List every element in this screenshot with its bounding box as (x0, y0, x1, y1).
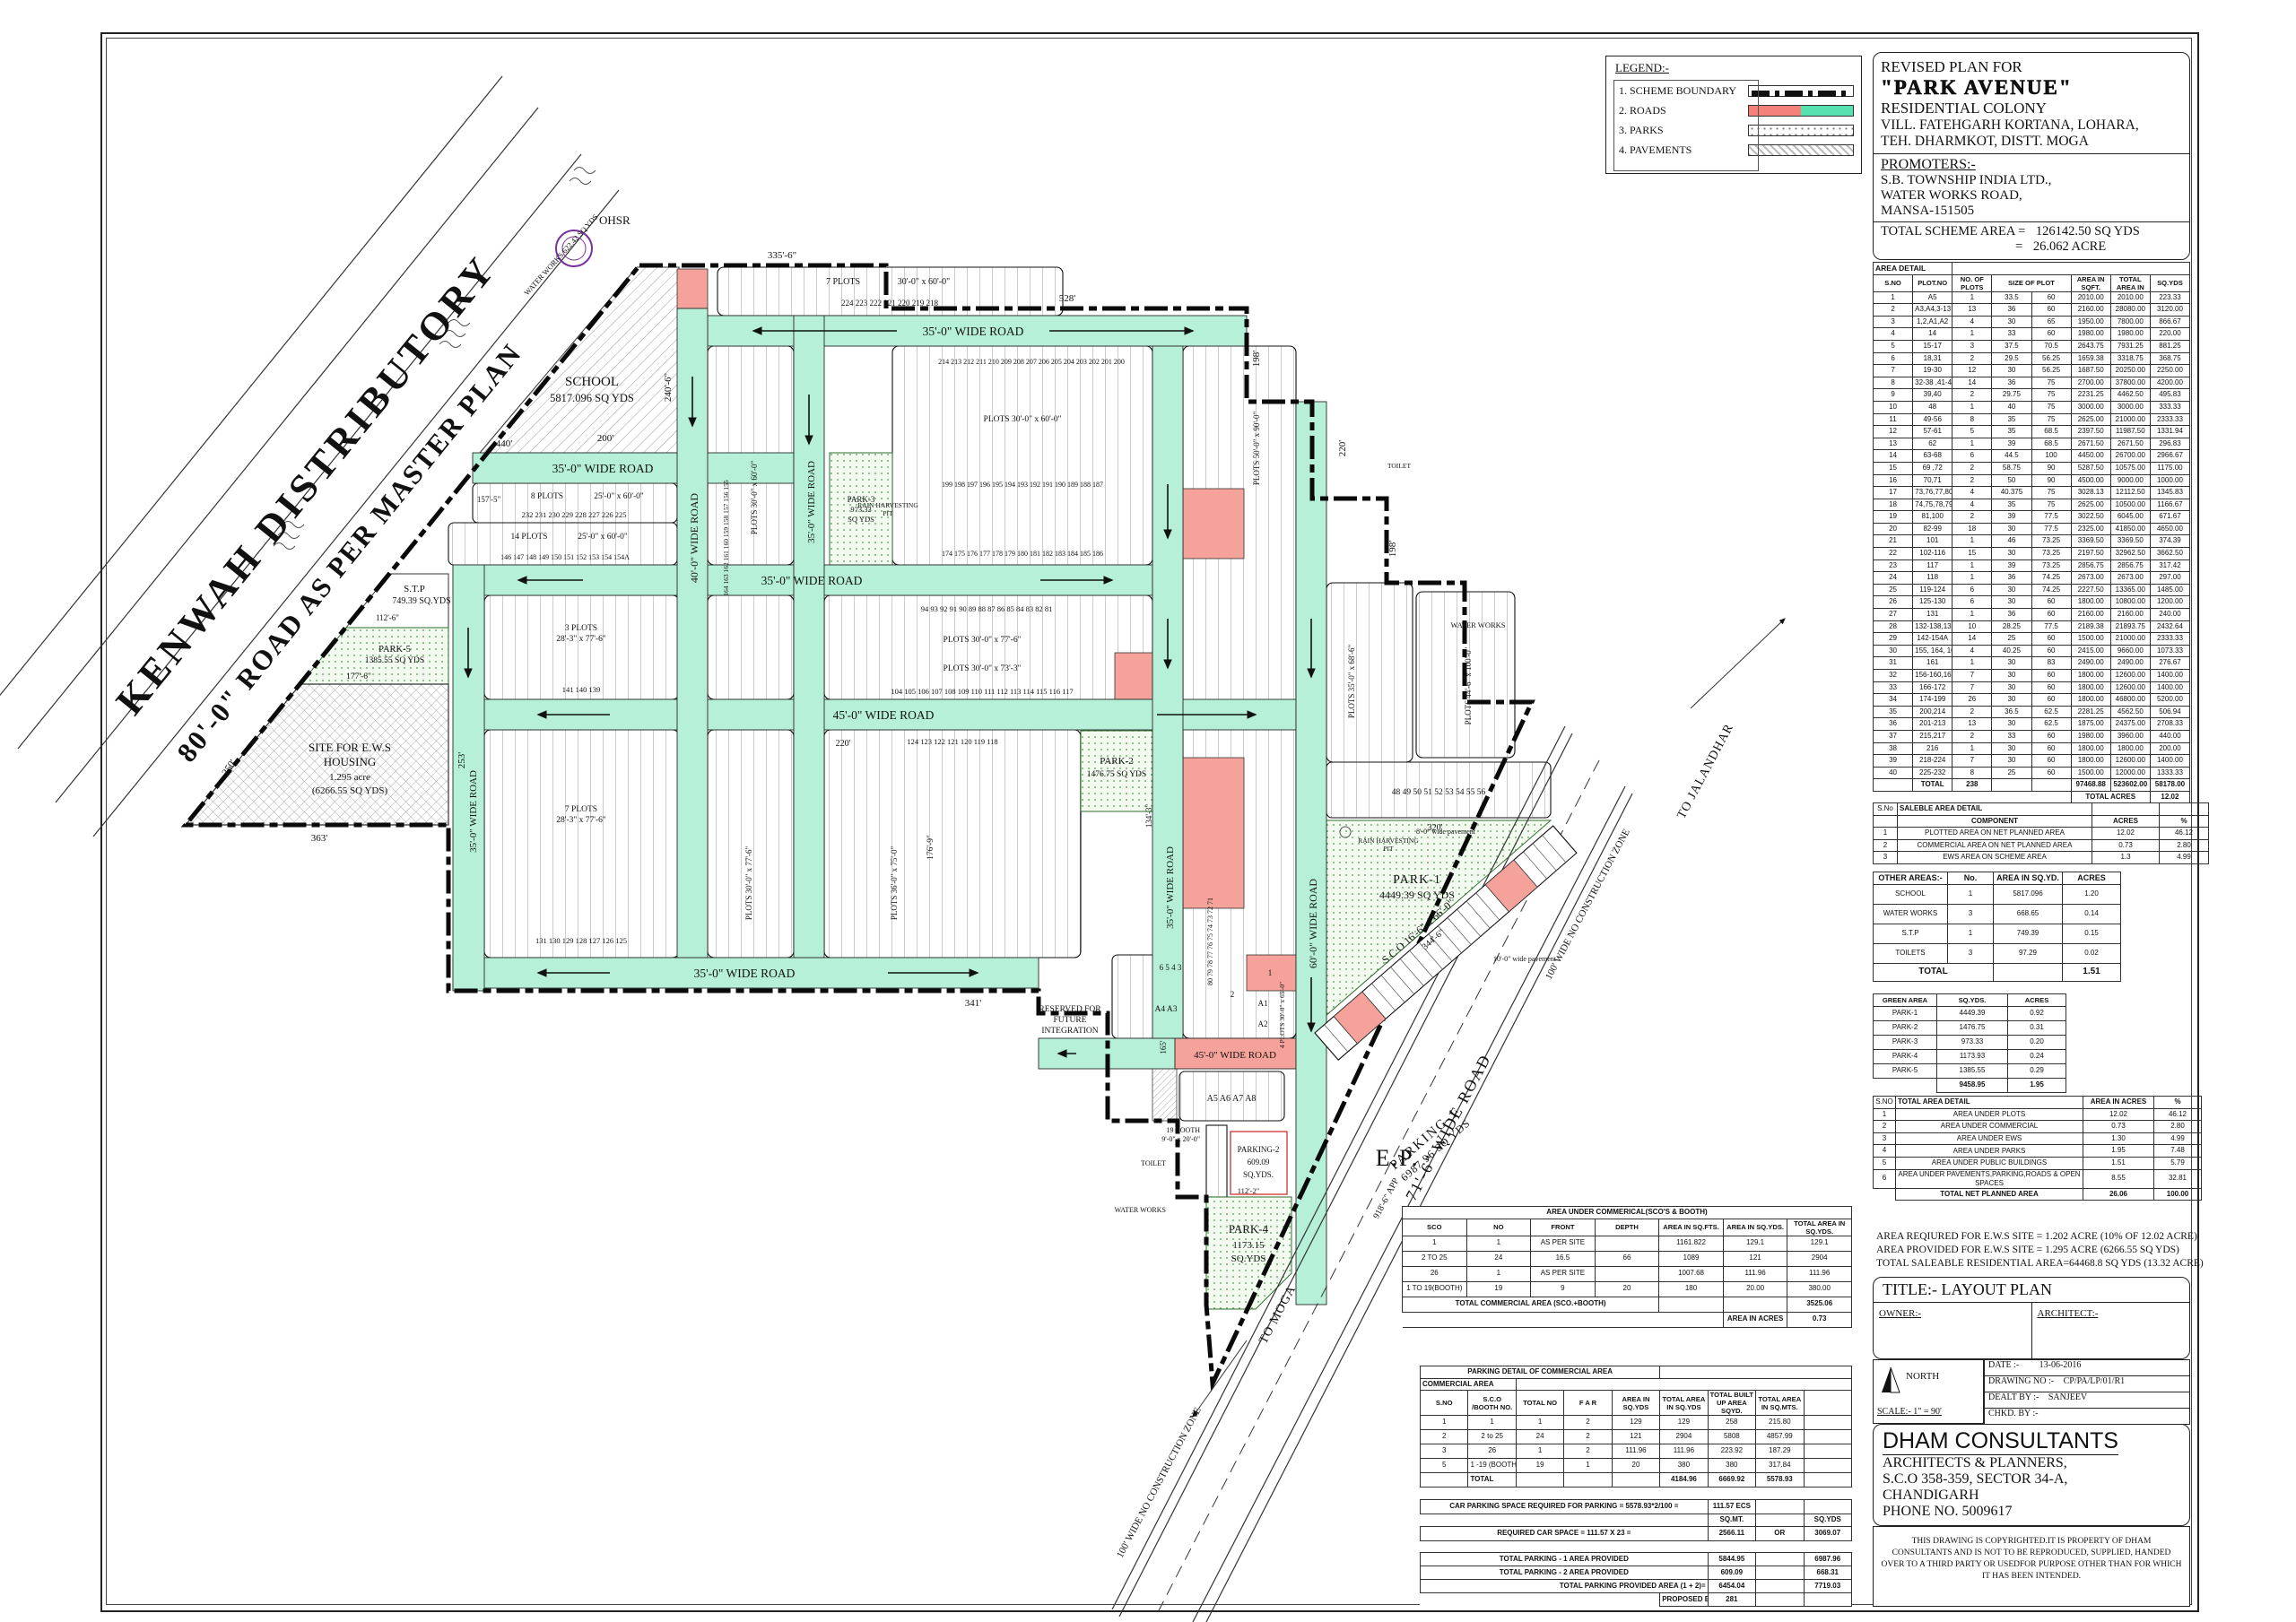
cell: 201-213 (1913, 718, 1952, 731)
scheme-area-label: TOTAL SCHEME AREA = (1881, 224, 2025, 239)
cell: 60 (2031, 670, 2071, 682)
cell: 60 (2031, 596, 2071, 609)
proposed-ecs: 281 (1708, 1593, 1755, 1607)
cell: 119-124 (1913, 584, 1952, 596)
cell: 36.5 (1992, 706, 2031, 718)
cell: 0.73 (2083, 1121, 2154, 1133)
cell: 2625.00 (2071, 413, 2110, 426)
cell: 73.25 (2031, 535, 2071, 548)
svg-text:E.P.: E.P. (1376, 1145, 1419, 1171)
cell (1595, 1266, 1659, 1281)
cell: 1 (1516, 1416, 1563, 1430)
cell: 6045.00 (2110, 511, 2150, 524)
cell: 11 (1874, 413, 1913, 426)
cell: 7800.00 (2110, 316, 2150, 328)
cell: 495.83 (2150, 389, 2189, 402)
cell: 30 (1992, 596, 2031, 609)
cell: 37800.00 (2110, 377, 2150, 389)
cell: 156-160,162,163 (1913, 670, 1952, 682)
cell: 33 (1992, 328, 2031, 341)
cell: 73.25 (2031, 548, 2071, 560)
cell: 216 (1913, 742, 1952, 755)
cell: 118 (1913, 572, 1952, 585)
cell: 90 (2031, 462, 2071, 474)
ohsr-water-tank: OHSR WATER WORKS 622.42 SQ YDS (522, 213, 631, 298)
cell: PARK-2 (1874, 1020, 1937, 1035)
cell: 1400.00 (2150, 670, 2189, 682)
cell: 24375.00 (2110, 718, 2150, 731)
cell: 5200.00 (2150, 694, 2189, 707)
cell: 3960.00 (2110, 730, 2150, 742)
cell: 1 (1948, 924, 1994, 943)
svg-text:8'-0" wide pavement: 8'-0" wide pavement (1416, 828, 1476, 836)
cell: 12.02 (2083, 1108, 2154, 1121)
svg-text:7 PLOTS: 7 PLOTS (826, 277, 860, 287)
svg-text:4449.39 SQ YDS: 4449.39 SQ YDS (1379, 889, 1455, 901)
parking-provided-total-label: TOTAL PARKING PROVIDED AREA (1 + 2)= (1421, 1580, 1709, 1593)
area-detail-title: AREA DETAIL (1874, 263, 1952, 275)
cell: 60 (2031, 304, 2071, 317)
parking-provided-total-a: 6454.04 (1708, 1580, 1755, 1593)
cell: 5817.096 (1994, 884, 2063, 904)
car-parking-label: CAR PARKING SPACE REQUIRED FOR PARKING =… (1421, 1499, 1709, 1514)
svg-text:8 PLOTS: 8 PLOTS (531, 492, 563, 501)
ta-sno: S.NO (1874, 1097, 1896, 1109)
cell: 2160.00 (2071, 609, 2110, 621)
cell: 70.5 (2031, 340, 2071, 352)
ohsr-label: OHSR (599, 213, 631, 227)
cell: 36 (1992, 377, 2031, 389)
svg-text:146 147 148 149 150 151: 146 147 148 149 150 151 152 153 154 154A (500, 553, 630, 561)
cell: 2325.00 (2071, 523, 2110, 535)
svg-text:94 93 92 91 90 89: 94 93 92 91 90 89 88 87 86 85 84 83 82 8… (921, 604, 1053, 613)
cell: 2671.50 (2071, 438, 2110, 450)
parking-subtitle: COMMERCIAL AREA (1421, 1378, 1517, 1391)
cell: 74,75,78,79 (1913, 499, 1952, 511)
cell: 12000.00 (2110, 767, 2150, 779)
cell: 7 (1952, 681, 1992, 694)
cell: 12112.50 (2110, 487, 2150, 499)
cell: 75 (2031, 487, 2071, 499)
p-col-totalarea: TOTAL AREA IN SQ.YDS (1660, 1391, 1708, 1416)
cell: 380 (1708, 1459, 1755, 1473)
cell: SCHOOL (1874, 884, 1948, 904)
cell: 9000.00 (2110, 474, 2150, 487)
cell: 11987.50 (2110, 426, 2150, 438)
cell: 75 (2031, 389, 2071, 402)
cell: 240.00 (2150, 609, 2189, 621)
title-line1: REVISED PLAN FOR (1881, 58, 2182, 76)
cell: 2333.33 (2150, 413, 2189, 426)
total-area: 523602.00 (2110, 779, 2150, 792)
cell: 4.99 (2154, 1132, 2202, 1145)
cell: 2397.50 (2071, 426, 2110, 438)
cell: 40 (1992, 401, 2031, 413)
cell: 317.84 (1756, 1459, 1804, 1473)
svg-text:40'-0" WIDE ROAD: 40'-0" WIDE ROAD (688, 493, 700, 583)
plot-block-east-col (1183, 346, 1296, 1038)
cell: 2160.00 (2110, 609, 2150, 621)
cell: 60 (2031, 730, 2071, 742)
svg-text:164 163 162 161 160 159: 164 163 162 161 160 159 158 157 156 155 (722, 480, 730, 596)
col-totalarea: TOTAL AREA IN (2110, 274, 2150, 291)
firm-line4: CHANDIGARH (1883, 1488, 2180, 1504)
parking1-provided-label: TOTAL PARKING - 1 AREA PROVIDED (1421, 1553, 1709, 1566)
cell: 7 (1952, 755, 1992, 768)
svg-text:PARKING-2: PARKING-2 (1238, 1145, 1280, 1154)
cell: 1800.00 (2110, 742, 2150, 755)
ews-note-2: AREA PROVIDED FOR E.W.S SITE = 1.295 ACR… (1876, 1244, 2192, 1257)
cell: 2432.64 (2150, 620, 2189, 633)
total-sqft: 97468.88 (2071, 779, 2110, 792)
svg-text:232 231 230 229 228: 232 231 230 229 228 227 226 225 (522, 510, 627, 519)
cell: 14 (1952, 377, 1992, 389)
svg-text:2: 2 (1231, 990, 1235, 999)
cell: 1 (1466, 1266, 1531, 1281)
cell: 1 (1952, 572, 1992, 585)
park4-label: PARK-4 1173.15 SQ.YDS (1229, 1222, 1269, 1264)
cell: 3369.50 (2071, 535, 2110, 548)
cell: 2189.38 (2071, 620, 2110, 633)
cell: 13 (1952, 304, 1992, 317)
cell: 3318.75 (2110, 352, 2150, 365)
svg-text:1385.55 SQ YDS: 1385.55 SQ YDS (365, 656, 424, 665)
cell: 1950.00 (2071, 316, 2110, 328)
cell: 5 (1874, 340, 1913, 352)
parking-table: PARKING DETAIL OF COMMERCIAL AREA COMMER… (1420, 1366, 1852, 1607)
cell: 9660.00 (2110, 645, 2150, 657)
cell: 0.24 (2008, 1049, 2066, 1063)
cell: 1800.00 (2071, 694, 2110, 707)
cell (1804, 1416, 1852, 1430)
cell: 881.25 (2150, 340, 2189, 352)
col-noplots: NO. OF PLOTS (1952, 274, 1992, 291)
svg-text:3 PLOTS: 3 PLOTS (565, 624, 597, 633)
svg-text:PLOTS 30'-0" x 77'-6": PLOTS 30'-0" x 77'-6" (744, 846, 753, 921)
cell: 111.96 (1723, 1266, 1787, 1281)
cell: 69 ,72 (1913, 462, 1952, 474)
svg-text:PLOTS 35'-0" x 68'-6": PLOTS 35'-0" x 68'-6" (1347, 645, 1356, 719)
cell: 63-68 (1913, 450, 1952, 463)
legend-title: LEGEND:- (1615, 61, 1861, 75)
cell: 6 (1952, 450, 1992, 463)
cell: 15 (1952, 548, 1992, 560)
cell: 28.25 (1992, 620, 2031, 633)
cell: 12.02 (2092, 828, 2160, 840)
cell: 0.15 (2063, 924, 2121, 943)
cell: 1 (1468, 1416, 1516, 1430)
cell: 30 (1992, 548, 2031, 560)
cell: 129 (1660, 1416, 1708, 1430)
cell: 102-116 (1913, 548, 1952, 560)
cell: 2643.75 (2071, 340, 2110, 352)
cell: 39 (1992, 559, 2031, 572)
cell: 142-154A (1913, 633, 1952, 646)
ews-notes: AREA REQIURED FOR E.W.S SITE = 1.202 ACR… (1876, 1230, 2192, 1271)
cell: 0.73 (2092, 839, 2160, 852)
cell: 440.00 (2150, 730, 2189, 742)
promoter-line3: MANSA-151505 (1881, 204, 2182, 219)
cell: 77.5 (2031, 620, 2071, 633)
cell: 57-61 (1913, 426, 1952, 438)
svg-text:609.09: 609.09 (1248, 1158, 1270, 1167)
cell: 132-138,139-141 (1913, 620, 1952, 633)
cell: 26 (1952, 694, 1992, 707)
c-col-total: TOTAL AREA IN SQ.YDS. (1787, 1219, 1852, 1236)
cell: 2904 (1787, 1251, 1852, 1266)
cell: 1161.822 (1659, 1236, 1724, 1251)
cell: 36 (1874, 718, 1913, 731)
cell: 16 (1874, 474, 1913, 487)
cell: A3,A4,3-13 (1913, 304, 1952, 317)
cell: AS PER SITE (1531, 1236, 1596, 1251)
cell: 2 (1874, 1121, 1896, 1133)
cell: 25 (1874, 584, 1913, 596)
svg-text:A1: A1 (1258, 999, 1268, 1008)
cell: 1800.00 (2071, 681, 2110, 694)
cell: TOILETS (1874, 943, 1948, 963)
cell: 3000.00 (2110, 401, 2150, 413)
cell: 15-17 (1913, 340, 1952, 352)
total-acres-label: TOTAL ACRES (2071, 791, 2150, 803)
cell: 75 (2031, 413, 2071, 426)
cell: 4.99 (2160, 852, 2209, 864)
required-val2: 3069.07 (1804, 1526, 1852, 1540)
cell: 62.5 (2031, 718, 2071, 731)
cell: 39 (1992, 438, 2031, 450)
cell: 37.5 (1992, 340, 2031, 352)
cell: 129.1 (1787, 1236, 1852, 1251)
cell: 20 (1612, 1459, 1659, 1473)
green-total-acres: 1.95 (2008, 1078, 2066, 1092)
cell: 4 (1952, 645, 1992, 657)
col-sno: S.NO (1874, 274, 1913, 291)
cell: 1089 (1659, 1251, 1724, 1266)
cell: 1 (1466, 1236, 1531, 1251)
cell: 1073.33 (2150, 645, 2189, 657)
saleable-component: COMPONENT (1898, 815, 2092, 828)
cell: 0.31 (2008, 1020, 2066, 1035)
svg-text:6 5 4 3: 6 5 4 3 (1160, 963, 1182, 972)
parking2-provided-a: 609.09 (1708, 1566, 1755, 1580)
svg-text:9'-0" x 20'-0": 9'-0" x 20'-0" (1161, 1135, 1200, 1143)
cell: 2 TO 25 (1403, 1251, 1467, 1266)
svg-text:253': 253' (457, 752, 467, 769)
cell: 200,214 (1913, 706, 1952, 718)
cell: 121 (1723, 1251, 1787, 1266)
scheme-area-sqyds: 126142.50 SQ YDS (2036, 224, 2140, 239)
cell: 5 (1874, 1157, 1896, 1169)
svg-text:PARK-2: PARK-2 (1100, 756, 1134, 767)
cell: 2708.33 (2150, 718, 2189, 731)
cell: 166-172 (1913, 681, 1952, 694)
saleable-acres: ACRES (2092, 815, 2160, 828)
promoter-line1: S.B. TOWNSHIP INDIA LTD., (1881, 173, 2182, 188)
cell: 866.67 (2150, 316, 2189, 328)
cell: 1000.00 (2150, 474, 2189, 487)
cell: 19 (1466, 1281, 1531, 1297)
cell: COMMERCIAL AREA ON NET PLANNED AREA (1898, 839, 2092, 852)
plot-block-west-mid (708, 595, 794, 699)
north-arrow-icon (1879, 1366, 1902, 1396)
cell: 1.3 (2092, 852, 2160, 864)
cell: 4200.00 (2150, 377, 2189, 389)
cell: 2 (1952, 389, 1992, 402)
parking-rows: 1112129129258215.8022 to 252421212904580… (1421, 1416, 1852, 1473)
cell: 40.375 (1992, 487, 2031, 499)
svg-text:PARK-1: PARK-1 (1393, 873, 1441, 887)
svg-text:112'-2": 112'-2" (1238, 1186, 1260, 1195)
svg-text:25'-0" x 60'-0": 25'-0" x 60'-0" (594, 492, 644, 501)
cell: AREA UNDER EWS (1896, 1132, 2083, 1145)
cell: 1800.00 (2071, 742, 2110, 755)
svg-text:RAIN HARVESTING: RAIN HARVESTING (857, 501, 918, 509)
cell: 2333.33 (2150, 633, 2189, 646)
cell: 60 (2031, 645, 2071, 657)
cell: 60 (2031, 633, 2071, 646)
cell: 56.25 (2031, 352, 2071, 365)
cell: 1333.33 (2150, 767, 2189, 779)
svg-text:35'-0" WIDE ROAD: 35'-0" WIDE ROAD (552, 462, 654, 475)
cell: 24 (1874, 572, 1913, 585)
cell: 20 (1595, 1281, 1659, 1297)
cell: 121 (1612, 1430, 1659, 1444)
svg-text:TO JALANDHAR: TO JALANDHAR (1675, 722, 1737, 821)
c-col-no: NO (1466, 1219, 1531, 1236)
cell: 1.20 (2063, 884, 2121, 904)
cell: AREA UNDER PUBLIC BUILDINGS (1896, 1157, 2083, 1169)
cell: PARK-4 (1874, 1049, 1937, 1063)
date-label: DATE :- (1988, 1360, 2019, 1370)
other-areas-acres: ACRES (2063, 872, 2121, 885)
cell: 1200.00 (2150, 596, 2189, 609)
svg-text:749.39 SQ.YDS: 749.39 SQ.YDS (392, 596, 450, 606)
c-col-front: FRONT (1531, 1219, 1596, 1236)
svg-text:19 BOOTH: 19 BOOTH (1166, 1126, 1200, 1134)
cell: 73.25 (2031, 559, 2071, 572)
cell: 131 (1913, 609, 1952, 621)
layout-plan-title: TITLE:- LAYOUT PLAN (1874, 1278, 2189, 1303)
cell: 1 (1874, 1108, 1896, 1121)
cell: 2 (1564, 1416, 1612, 1430)
water-works-small-label: WATER WORKS 622.42 SQ YDS (522, 213, 600, 298)
car-parking-val: 111.57 ECS (1708, 1499, 1755, 1514)
cell: AREA UNDER PLOTS (1896, 1108, 2083, 1121)
plot-block-118-124 (824, 730, 1081, 958)
cell: 39,40 (1913, 389, 1952, 402)
cell: 2 to 25 (1468, 1430, 1516, 1444)
cell: 34 (1874, 694, 1913, 707)
cell (1595, 1236, 1659, 1251)
cell: 2.80 (2154, 1121, 2202, 1133)
cell: 1500.00 (2071, 767, 2110, 779)
p-col-area: AREA IN SQ.YDS (1612, 1391, 1659, 1416)
cell: 70,71 (1913, 474, 1952, 487)
green-col-acres: ACRES (2008, 994, 2066, 1007)
cell: 215.80 (1756, 1416, 1804, 1430)
cell: 380 (1660, 1459, 1708, 1473)
cell: 9 (1874, 389, 1913, 402)
commercial-total-label: TOTAL COMMERCIAL AREA (SCO.+BOOTH) (1403, 1297, 1659, 1312)
cell: 62 (1913, 438, 1952, 450)
p-col-booth: S.C.O /BOOTH NO. (1468, 1391, 1516, 1416)
svg-text:SQ.YDS.: SQ.YDS. (1243, 1170, 1274, 1179)
cell: 28080.00 (2110, 304, 2150, 317)
parking2-provided-b: 668.31 (1804, 1566, 1852, 1580)
cell: 19 (1874, 511, 1913, 524)
cell: 155, 164, 165, 173 (1913, 645, 1952, 657)
parking-total-label: TOTAL (1468, 1473, 1516, 1488)
svg-text:TOILET: TOILET (1387, 462, 1412, 470)
svg-text:1.295 acre: 1.295 acre (329, 772, 370, 783)
required-label: REQUIRED CAR SPACE = 111.57 X 23 = (1421, 1526, 1709, 1540)
total-label: TOTAL (1913, 779, 1952, 792)
cell: 33 (1874, 681, 1913, 694)
cell: 60 (2031, 609, 2071, 621)
cell: 223.92 (1708, 1444, 1755, 1459)
cell: 83 (2031, 657, 2071, 670)
svg-text:WATER WORKS: WATER WORKS (1115, 1206, 1166, 1214)
svg-text:PLOTS 30'-0" x 73'-3": PLOTS 30'-0" x 73'-3" (944, 664, 1022, 673)
cell: 46.12 (2154, 1108, 2202, 1121)
cell: 32 (1874, 670, 1913, 682)
ta-total-acres: 26.06 (2083, 1188, 2154, 1201)
cell: 1 (1952, 401, 1992, 413)
cell: 60 (2031, 681, 2071, 694)
cell: 2490.00 (2071, 657, 2110, 670)
cell: 0.02 (2063, 943, 2121, 963)
cell: 2 (1564, 1444, 1612, 1459)
parking2-provided-label: TOTAL PARKING - 2 AREA PROVIDED (1421, 1566, 1709, 1580)
cell: 1 (1952, 438, 1992, 450)
other-areas-area: AREA IN SQ.YD. (1994, 872, 2063, 885)
cell: 129 (1612, 1416, 1659, 1430)
cell: 2673.00 (2071, 572, 2110, 585)
cell: 1 (1874, 291, 1913, 304)
cell: 111.96 (1612, 1444, 1659, 1459)
cell: 368.75 (2150, 352, 2189, 365)
cell: 333.33 (2150, 401, 2189, 413)
copyright-block: THIS DRAWING IS COPYRIGHTED.IT IS PROPER… (1873, 1526, 2190, 1607)
cell: 20250.00 (2110, 365, 2150, 377)
sqyds-label: SQ.YDS (1804, 1514, 1852, 1526)
cell: 33.5 (1992, 291, 2031, 304)
commercial-title: AREA UNDER COMMERICAL(SCO'S & BOOTH) (1403, 1207, 1852, 1219)
cell: 7 (1874, 365, 1913, 377)
booth-label: 19 BOOTH 9'-0" x 20'-0" TOILET WATER WOR… (1115, 1126, 1201, 1214)
cell: 749.39 (1994, 924, 2063, 943)
cell: 68.5 (2031, 438, 2071, 450)
title-block: REVISED PLAN FOR "PARK AVENUE" RESIDENTI… (1873, 52, 2190, 260)
cell: 174-199 (1913, 694, 1952, 707)
cell: 10 (1952, 620, 1992, 633)
svg-text:PLOTS 50'-0" x 90'-0": PLOTS 50'-0" x 90'-0" (1252, 412, 1261, 486)
col-sqyds: SQ.YDS (2150, 274, 2189, 291)
cell: 2856.75 (2071, 559, 2110, 572)
cell: 2010.00 (2110, 291, 2150, 304)
cell: 14 (1913, 328, 1952, 341)
cell: 1007.68 (1659, 1266, 1724, 1281)
cell: 1 -19 (BOOTH) (1468, 1459, 1516, 1473)
cell: 2856.75 (2110, 559, 2150, 572)
cell: A5 (1913, 291, 1952, 304)
cell: 36 (1992, 609, 2031, 621)
dealt-label: DEALT BY :- (1988, 1392, 2039, 1402)
cell: 19-30 (1913, 365, 1952, 377)
cell: 81,100 (1913, 511, 1952, 524)
svg-text:200': 200' (597, 433, 614, 444)
area-detail-rows: 1A5133.5602010.002010.00223.332A3,A4,3-1… (1874, 291, 2190, 779)
